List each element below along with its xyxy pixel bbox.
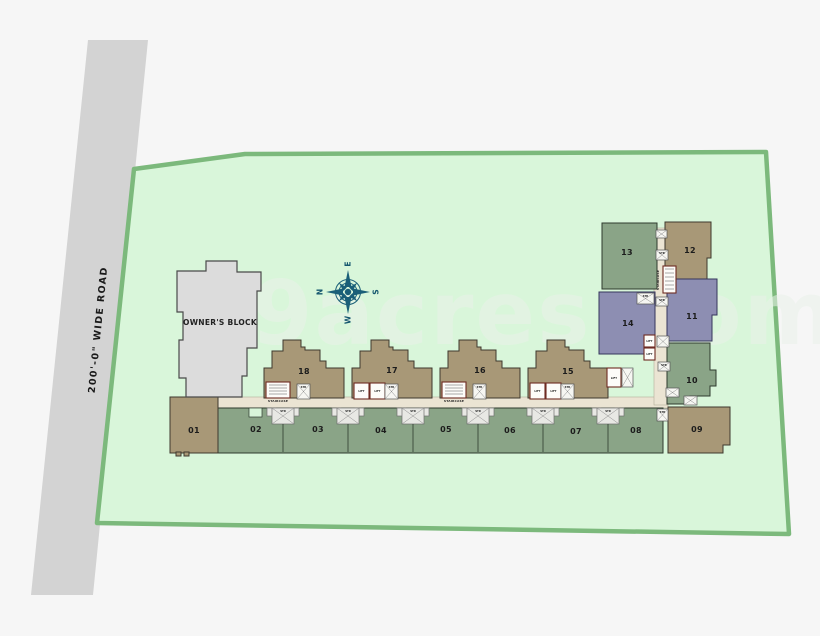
compass-south-label: S xyxy=(372,289,381,294)
block-05-number: 05 xyxy=(440,425,452,434)
bay-str-label: STR xyxy=(280,409,286,413)
str-label: STR xyxy=(477,385,483,389)
owners-block-label: OWNER'S BLOCK xyxy=(183,318,258,327)
block-14-number: 14 xyxy=(622,319,634,328)
str-label: STR xyxy=(661,363,667,367)
block-17-lifts: LIFT LIFT xyxy=(354,383,385,399)
block-16-number: 16 xyxy=(474,366,486,375)
block-14-str: STR xyxy=(637,293,654,304)
bay-str-label: STR xyxy=(410,409,416,413)
block-01 xyxy=(170,397,218,453)
block-18-number: 18 xyxy=(298,367,310,376)
site-plan-canvas: 200'-0" WIDE ROAD 99acres.com STR STR ST… xyxy=(0,0,820,636)
compass-north-label: N xyxy=(316,289,325,295)
compass-west-label: W xyxy=(344,315,353,324)
block-18-staircase: STAIRCASE xyxy=(266,382,290,403)
block-11-number: 11 xyxy=(686,312,698,321)
lift-label: LIFT xyxy=(550,389,556,393)
block-08-number: 08 xyxy=(630,426,642,435)
strip-notch xyxy=(249,408,262,417)
compass-east-label: E xyxy=(344,261,353,266)
block-15-str: STR xyxy=(561,384,574,399)
block-16-staircase: STAIRCASE xyxy=(442,382,466,403)
str-label: STR xyxy=(659,298,665,302)
block-17-str: STR xyxy=(385,384,398,399)
block-04-number: 04 xyxy=(375,426,387,435)
str-label: STR xyxy=(301,385,307,389)
str-label: STR xyxy=(660,410,666,414)
str-label: STR xyxy=(659,251,665,255)
corridor-str-mid: STR xyxy=(656,297,668,306)
bay-str-label: STR xyxy=(475,409,481,413)
block-15-lifts: LIFT LIFT xyxy=(530,383,561,399)
lift-label: LIFT xyxy=(611,376,617,380)
block-03-number: 03 xyxy=(312,425,324,434)
staircase-caption-vertical: STAIRCASE xyxy=(656,270,660,290)
corridor-str-top: STR xyxy=(656,250,668,260)
block-13-number: 13 xyxy=(621,248,633,257)
block-01-number: 01 xyxy=(188,426,200,435)
bay-str-label: STR xyxy=(540,409,546,413)
block-12-number: 12 xyxy=(684,246,696,255)
block-10-number: 10 xyxy=(686,376,698,385)
block-17-number: 17 xyxy=(386,366,398,375)
block-16-str: STR xyxy=(473,384,486,399)
block-15-number: 15 xyxy=(562,367,574,376)
lift-label: LIFT xyxy=(358,389,364,393)
corridor-str-low: STR xyxy=(658,362,670,371)
lift-label: LIFT xyxy=(534,389,540,393)
str-label: STR xyxy=(565,385,571,389)
bay-str-label: STR xyxy=(345,409,351,413)
lift-label: LIFT xyxy=(374,389,380,393)
block-02-number: 02 xyxy=(250,425,262,434)
bay-str-label: STR xyxy=(605,409,611,413)
str-label: STR xyxy=(643,294,649,298)
staircase-caption: STAIRCASE xyxy=(268,399,288,403)
block-09-number: 09 xyxy=(691,425,703,434)
block-07-number: 07 xyxy=(570,427,582,436)
block-18-str: STR xyxy=(297,384,310,399)
block-15-right-lift: LIFT xyxy=(607,368,633,387)
str-label: STR xyxy=(389,385,395,389)
block-01-notch xyxy=(184,452,189,456)
site-plan-svg: 200'-0" WIDE ROAD 99acres.com STR STR ST… xyxy=(0,0,820,636)
staircase-caption: STAIRCASE xyxy=(444,399,464,403)
lift-label: LIFT xyxy=(646,352,652,356)
block-06-number: 06 xyxy=(504,426,516,435)
block-01-notch xyxy=(176,452,181,456)
corridor-staircase: STAIRCASE xyxy=(656,266,676,293)
lift-label: LIFT xyxy=(646,339,652,343)
